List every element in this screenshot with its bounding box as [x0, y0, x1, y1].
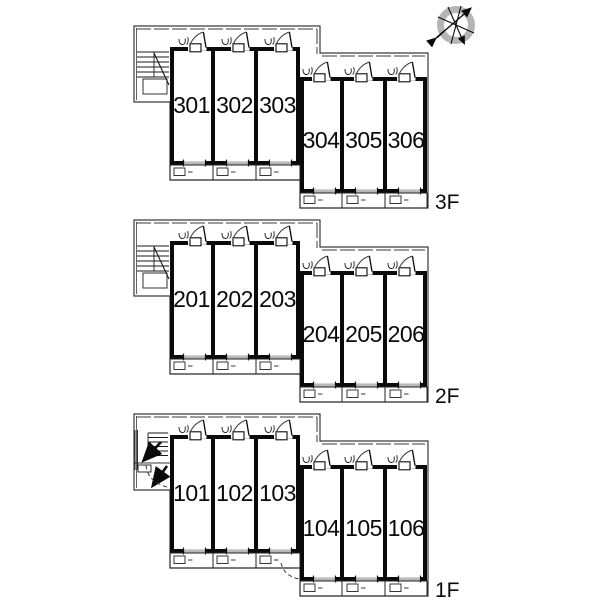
room-label-202: 202 — [216, 286, 253, 312]
room-label-305: 305 — [345, 127, 382, 153]
floor-label-1f: 1F — [435, 579, 460, 600]
room-label-104: 104 — [303, 515, 341, 541]
room-label-206: 206 — [388, 321, 425, 347]
room-label-105: 105 — [345, 515, 382, 541]
room-label-303: 303 — [259, 92, 296, 118]
room-label-302: 302 — [216, 92, 253, 118]
floor-plan-svg: 301 302 303 304 305 306 3F 201 202 203 2… — [0, 0, 600, 600]
room-label-205: 205 — [345, 321, 382, 347]
room-label-106: 106 — [388, 515, 425, 541]
room-label-301: 301 — [173, 92, 210, 118]
floor-label-3f: 3F — [435, 191, 460, 214]
floor-2f-plan: 201 202 203 204 205 206 2F — [134, 220, 460, 408]
north-compass-icon — [435, 6, 474, 44]
room-label-203: 203 — [259, 286, 296, 312]
floor-1f-plan: 101 102 103 104 105 106 1F — [134, 414, 460, 600]
room-label-102: 102 — [216, 480, 253, 506]
room-label-101: 101 — [173, 480, 210, 506]
floor-plan-canvas: 301 302 303 304 305 306 3F 201 202 203 2… — [0, 0, 600, 600]
room-label-103: 103 — [259, 480, 296, 506]
room-label-306: 306 — [388, 127, 425, 153]
room-label-201: 201 — [173, 286, 210, 312]
room-label-304: 304 — [303, 127, 341, 153]
room-label-204: 204 — [303, 321, 341, 347]
floor-3f-plan: 301 302 303 304 305 306 3F — [134, 26, 460, 214]
floor-label-2f: 2F — [435, 385, 460, 408]
